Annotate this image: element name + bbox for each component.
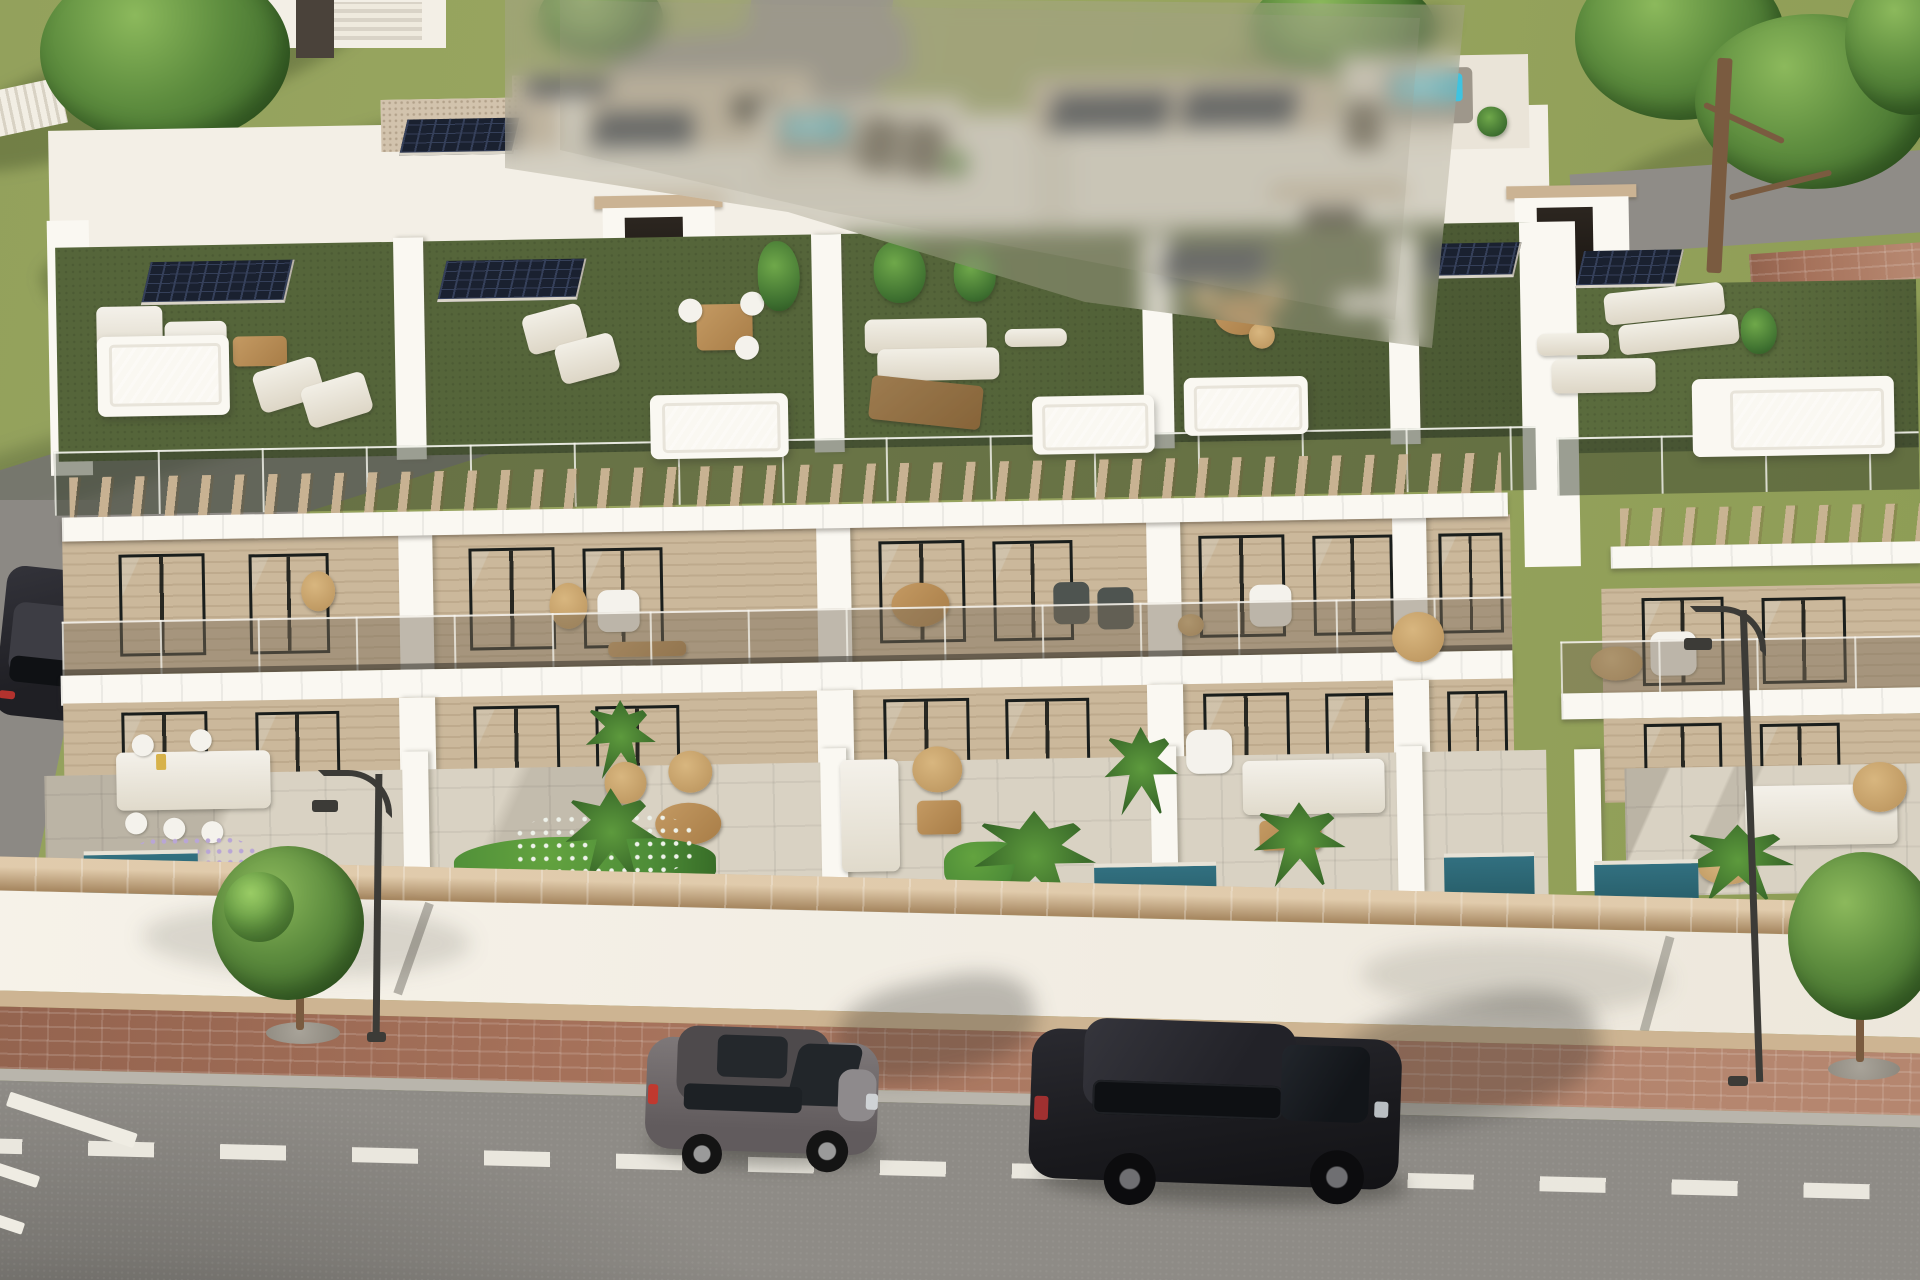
street-lamp-pole <box>1740 610 1763 1082</box>
sidewalk-tree <box>1788 852 1920 1020</box>
foreground-layer <box>0 0 1920 1280</box>
street-lamp-pole <box>373 774 383 1036</box>
street-lamp-head <box>312 800 338 812</box>
street-lamp-base <box>1728 1076 1748 1086</box>
street-lamp-head <box>1684 638 1712 650</box>
car-wheel <box>681 1133 722 1174</box>
car-taillight <box>648 1084 659 1104</box>
tree-highlight <box>224 872 294 942</box>
car-grey-hatchback <box>638 1022 891 1173</box>
street-lamp-base <box>367 1032 386 1042</box>
render-canvas <box>0 0 1920 1280</box>
car-headlight <box>866 1094 879 1110</box>
car-windshield <box>1280 1044 1371 1123</box>
tree-planter <box>1828 1058 1900 1080</box>
car-side-windows <box>1092 1080 1283 1121</box>
car-headlight <box>1374 1101 1389 1117</box>
car-side-windows <box>684 1083 803 1113</box>
car-wheel <box>805 1130 848 1173</box>
car-black-suv <box>1019 1011 1418 1221</box>
car-taillight <box>1034 1096 1049 1120</box>
car-sunroof <box>717 1034 788 1078</box>
